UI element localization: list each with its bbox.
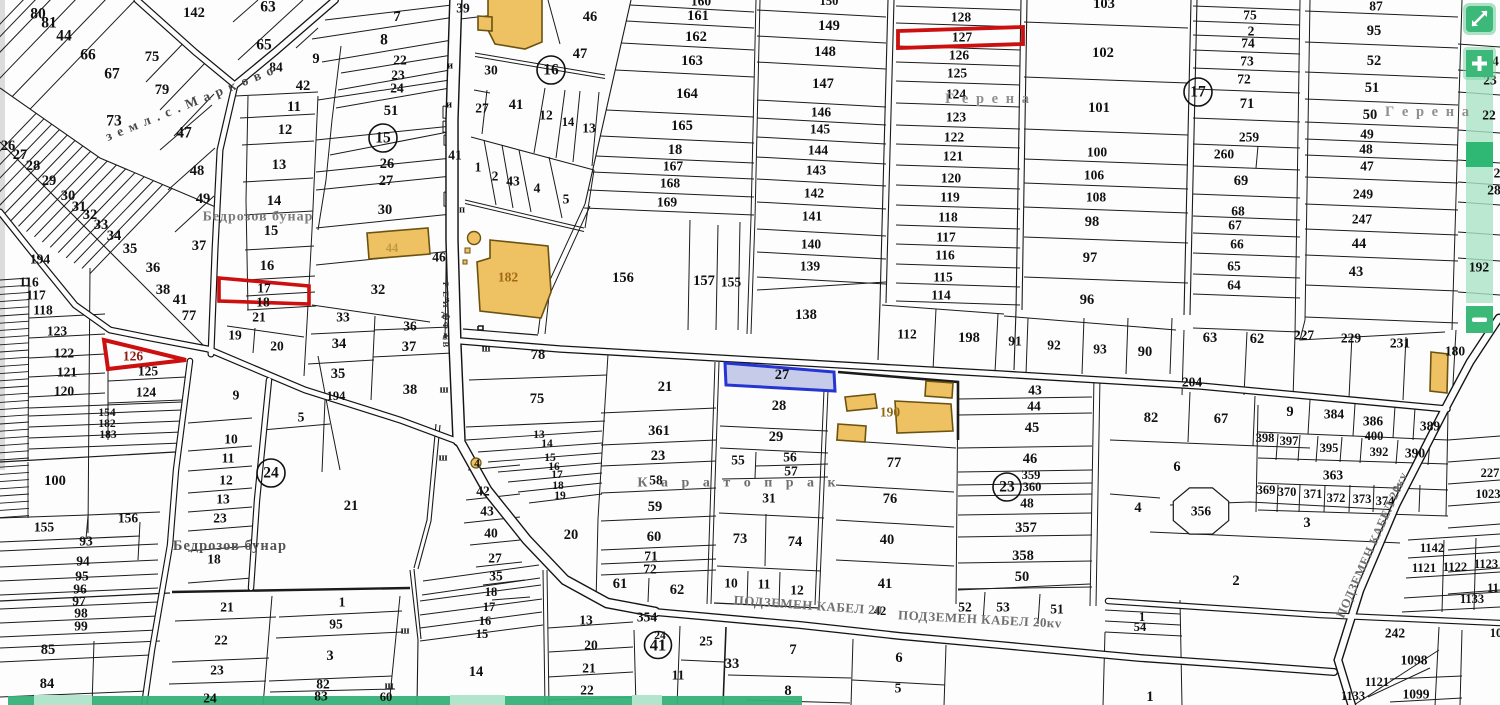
- svg-text:121: 121: [57, 365, 78, 380]
- svg-text:3: 3: [1303, 515, 1310, 531]
- svg-text:75: 75: [145, 49, 160, 65]
- svg-text:41: 41: [509, 97, 524, 113]
- svg-text:33: 33: [336, 310, 350, 325]
- svg-text:37: 37: [192, 238, 207, 254]
- svg-text:125: 125: [947, 66, 968, 81]
- svg-text:161: 161: [687, 8, 709, 24]
- svg-text:192: 192: [1469, 260, 1490, 275]
- svg-text:146: 146: [811, 105, 832, 120]
- svg-text:41: 41: [448, 148, 462, 163]
- svg-text:60: 60: [647, 529, 662, 545]
- svg-text:126: 126: [949, 48, 970, 63]
- svg-text:386: 386: [1363, 414, 1384, 429]
- svg-text:ш: ш: [385, 681, 394, 692]
- svg-text:51: 51: [1050, 602, 1064, 617]
- svg-text:Р Е И Д Ф 4 В: Р Е И Д Ф 4 В: [441, 282, 451, 348]
- svg-text:46: 46: [583, 9, 598, 25]
- svg-text:42: 42: [476, 484, 490, 499]
- svg-text:260: 260: [1214, 147, 1235, 162]
- svg-text:155: 155: [721, 275, 742, 290]
- svg-text:44: 44: [1352, 236, 1367, 252]
- svg-text:6: 6: [895, 650, 902, 666]
- svg-text:118: 118: [33, 303, 53, 318]
- svg-text:44: 44: [56, 28, 72, 45]
- svg-text:52: 52: [1367, 53, 1382, 69]
- svg-text:33: 33: [725, 656, 740, 672]
- svg-text:194: 194: [327, 389, 347, 403]
- svg-text:167: 167: [663, 159, 684, 174]
- svg-text:29: 29: [42, 173, 57, 189]
- svg-text:13: 13: [582, 121, 596, 136]
- svg-text:43: 43: [506, 174, 520, 189]
- svg-text:23: 23: [999, 479, 1015, 496]
- svg-text:22: 22: [214, 633, 228, 648]
- svg-text:47: 47: [573, 46, 588, 62]
- svg-text:97: 97: [1083, 250, 1098, 266]
- svg-text:390: 390: [1405, 446, 1426, 461]
- svg-text:5: 5: [298, 410, 305, 425]
- svg-text:1098: 1098: [1401, 653, 1428, 668]
- svg-text:36: 36: [146, 260, 161, 276]
- svg-text:24: 24: [390, 81, 404, 96]
- svg-text:17: 17: [257, 281, 271, 296]
- svg-text:1133: 1133: [1460, 592, 1484, 606]
- svg-text:371: 371: [1304, 487, 1323, 501]
- svg-text:20: 20: [564, 527, 579, 543]
- svg-text:204: 204: [1182, 375, 1203, 390]
- svg-text:8: 8: [380, 32, 388, 49]
- svg-text:28: 28: [1487, 183, 1500, 198]
- svg-text:99: 99: [74, 619, 88, 634]
- svg-text:123: 123: [946, 110, 967, 125]
- svg-text:22: 22: [580, 683, 594, 698]
- svg-text:51: 51: [384, 103, 399, 119]
- svg-text:120: 120: [941, 171, 962, 186]
- svg-text:75: 75: [1243, 8, 1257, 23]
- svg-text:95: 95: [1367, 23, 1382, 39]
- svg-text:38: 38: [403, 382, 418, 398]
- svg-text:145: 145: [810, 122, 831, 137]
- svg-text:67: 67: [1214, 411, 1229, 427]
- svg-text:4: 4: [534, 181, 541, 196]
- svg-text:142: 142: [804, 186, 825, 201]
- svg-text:12: 12: [219, 473, 233, 488]
- svg-text:77: 77: [887, 455, 902, 471]
- svg-text:400: 400: [1365, 429, 1384, 443]
- svg-text:К а р а т о п р а к: К а р а т о п р а к: [637, 476, 840, 491]
- svg-text:34: 34: [332, 336, 347, 352]
- svg-text:84: 84: [40, 676, 55, 692]
- svg-text:116: 116: [935, 248, 955, 263]
- svg-text:363: 363: [1323, 468, 1344, 483]
- svg-text:48: 48: [1359, 142, 1373, 157]
- svg-text:392: 392: [1370, 445, 1389, 459]
- svg-text:87: 87: [1369, 0, 1383, 14]
- svg-text:108: 108: [1086, 190, 1107, 205]
- svg-text:9: 9: [233, 388, 240, 403]
- svg-text:155: 155: [34, 520, 55, 535]
- svg-text:27: 27: [488, 551, 502, 566]
- svg-text:ш: ш: [439, 453, 448, 464]
- svg-text:156: 156: [612, 270, 634, 286]
- svg-text:389: 389: [1420, 419, 1441, 434]
- svg-text:30: 30: [484, 63, 498, 78]
- svg-text:1133: 1133: [1341, 689, 1365, 703]
- svg-text:10: 10: [224, 432, 238, 447]
- svg-text:25: 25: [699, 634, 713, 649]
- svg-text:98: 98: [1085, 214, 1100, 230]
- svg-text:1142: 1142: [1420, 541, 1444, 555]
- svg-text:369: 369: [1257, 483, 1276, 497]
- svg-text:68: 68: [1231, 204, 1245, 219]
- svg-text:18: 18: [256, 295, 270, 310]
- svg-text:101: 101: [1088, 100, 1110, 116]
- svg-text:95: 95: [329, 617, 343, 632]
- svg-text:2: 2: [1494, 166, 1500, 181]
- svg-text:12: 12: [539, 108, 553, 123]
- svg-text:144: 144: [808, 143, 829, 158]
- svg-text:73: 73: [733, 531, 748, 547]
- svg-text:ш: ш: [440, 385, 449, 396]
- svg-text:43: 43: [1349, 264, 1364, 280]
- svg-text:1023: 1023: [1476, 487, 1500, 501]
- svg-text:112: 112: [897, 327, 917, 342]
- svg-text:1: 1: [475, 160, 482, 175]
- svg-text:81: 81: [41, 15, 57, 32]
- svg-text:47: 47: [1360, 159, 1374, 174]
- svg-text:ш: ш: [401, 626, 410, 637]
- svg-text:23: 23: [213, 511, 227, 526]
- svg-text:79: 79: [155, 82, 170, 98]
- svg-text:126: 126: [123, 349, 144, 364]
- svg-text:Г е р е н а: Г е р е н а: [1385, 104, 1471, 120]
- svg-text:93: 93: [1093, 342, 1107, 357]
- svg-text:1099: 1099: [1403, 687, 1430, 702]
- svg-text:183: 183: [99, 429, 117, 441]
- svg-text:143: 143: [806, 163, 827, 178]
- svg-text:22: 22: [393, 53, 407, 68]
- svg-text:59: 59: [648, 499, 663, 515]
- svg-text:122: 122: [54, 346, 75, 361]
- svg-text:43: 43: [480, 504, 494, 519]
- svg-text:75: 75: [530, 391, 545, 407]
- svg-text:93: 93: [79, 534, 93, 549]
- svg-text:21: 21: [252, 310, 266, 325]
- svg-text:27: 27: [475, 101, 489, 116]
- svg-text:124: 124: [136, 385, 157, 400]
- svg-text:1: 1: [339, 595, 346, 610]
- svg-text:92: 92: [1047, 338, 1061, 353]
- svg-text:23: 23: [210, 663, 224, 678]
- svg-text:242: 242: [1385, 626, 1406, 641]
- svg-text:42: 42: [296, 78, 311, 94]
- svg-text:30: 30: [378, 202, 393, 218]
- svg-text:37: 37: [402, 339, 417, 355]
- svg-text:35: 35: [123, 241, 138, 257]
- svg-text:39: 39: [456, 1, 470, 16]
- svg-text:7: 7: [789, 642, 796, 658]
- svg-text:18: 18: [668, 142, 683, 158]
- svg-text:120: 120: [54, 384, 75, 399]
- svg-text:164: 164: [676, 86, 698, 102]
- svg-text:227: 227: [1481, 466, 1500, 480]
- svg-text:67: 67: [1228, 218, 1242, 233]
- svg-text:94: 94: [76, 554, 90, 569]
- svg-text:48: 48: [1020, 496, 1034, 511]
- svg-text:106: 106: [1084, 168, 1105, 183]
- svg-text:11: 11: [1487, 581, 1499, 595]
- svg-text:149: 149: [818, 18, 840, 34]
- svg-text:16: 16: [479, 614, 492, 628]
- svg-text:16: 16: [543, 62, 559, 79]
- svg-text:14: 14: [541, 438, 553, 450]
- svg-text:11: 11: [287, 99, 301, 115]
- svg-text:5: 5: [563, 192, 570, 207]
- svg-text:18: 18: [485, 585, 498, 599]
- svg-text:40: 40: [484, 526, 498, 541]
- svg-text:56: 56: [783, 450, 797, 465]
- svg-text:46: 46: [1023, 451, 1038, 467]
- svg-text:10: 10: [724, 576, 738, 591]
- svg-text:27: 27: [775, 367, 790, 383]
- svg-text:5: 5: [895, 681, 902, 696]
- svg-text:180: 180: [1445, 344, 1466, 359]
- svg-text:21: 21: [220, 600, 234, 615]
- svg-text:50: 50: [1363, 107, 1378, 123]
- svg-text:27: 27: [379, 173, 394, 189]
- svg-text:26: 26: [380, 156, 395, 172]
- svg-text:41: 41: [650, 636, 667, 655]
- svg-text:370: 370: [1278, 485, 1297, 499]
- svg-text:76: 76: [883, 491, 898, 507]
- svg-text:49: 49: [196, 191, 211, 207]
- svg-text:65: 65: [1227, 259, 1241, 274]
- svg-text:15: 15: [476, 627, 489, 641]
- svg-text:17: 17: [483, 600, 496, 614]
- svg-text:и: и: [447, 61, 453, 72]
- svg-text:19: 19: [228, 328, 242, 343]
- svg-text:138: 138: [795, 307, 817, 323]
- svg-text:356: 356: [1191, 504, 1212, 519]
- svg-text:62: 62: [1250, 331, 1265, 347]
- svg-text:и: и: [446, 100, 452, 111]
- svg-text:11: 11: [758, 577, 771, 592]
- svg-text:55: 55: [731, 453, 745, 468]
- svg-text:8: 8: [784, 683, 791, 699]
- svg-text:1123: 1123: [1474, 557, 1498, 571]
- svg-text:194: 194: [30, 252, 51, 267]
- svg-text:47: 47: [176, 125, 192, 142]
- svg-text:229: 229: [1341, 331, 1362, 346]
- svg-text:82: 82: [1144, 410, 1159, 426]
- svg-text:148: 148: [814, 44, 836, 60]
- svg-text:20: 20: [584, 638, 598, 653]
- svg-text:54: 54: [1134, 620, 1147, 634]
- svg-text:13: 13: [216, 492, 230, 507]
- svg-text:361: 361: [648, 423, 670, 439]
- svg-text:15: 15: [375, 130, 391, 147]
- svg-text:24: 24: [203, 691, 217, 705]
- svg-text:96: 96: [1080, 292, 1095, 308]
- svg-text:162: 162: [685, 29, 707, 45]
- svg-text:72: 72: [643, 562, 657, 577]
- svg-text:372: 372: [1327, 491, 1346, 505]
- svg-text:15: 15: [264, 223, 279, 239]
- svg-text:п: п: [459, 205, 465, 216]
- svg-text:64: 64: [1227, 278, 1241, 293]
- svg-text:117: 117: [936, 230, 956, 245]
- svg-text:60: 60: [380, 690, 393, 704]
- svg-text:43: 43: [1028, 383, 1042, 398]
- svg-text:9: 9: [312, 51, 319, 67]
- svg-text:3: 3: [326, 648, 333, 664]
- svg-text:13: 13: [579, 613, 593, 628]
- svg-text:Г е р е н а: Г е р е н а: [945, 91, 1031, 107]
- svg-text:100: 100: [1087, 145, 1108, 160]
- svg-text:357: 357: [1015, 520, 1037, 536]
- svg-text:360: 360: [1023, 480, 1042, 494]
- svg-text:227: 227: [1294, 328, 1315, 343]
- svg-text:50: 50: [1015, 569, 1030, 585]
- svg-text:51: 51: [1365, 80, 1380, 96]
- svg-text:91: 91: [1008, 334, 1022, 349]
- svg-text:142: 142: [183, 5, 205, 21]
- svg-text:83: 83: [314, 689, 328, 704]
- svg-text:32: 32: [371, 282, 386, 298]
- svg-text:127: 127: [952, 30, 973, 45]
- svg-text:12: 12: [278, 122, 293, 138]
- svg-text:6: 6: [1173, 459, 1180, 475]
- svg-text:198: 198: [958, 330, 980, 346]
- svg-text:62: 62: [670, 582, 685, 598]
- svg-text:73: 73: [1240, 54, 1254, 69]
- svg-text:71: 71: [1240, 96, 1255, 112]
- svg-text:102: 102: [1092, 45, 1114, 61]
- svg-text:12: 12: [790, 583, 804, 598]
- svg-text:147: 147: [812, 76, 834, 92]
- svg-text:140: 140: [801, 237, 822, 252]
- svg-text:117: 117: [26, 288, 46, 303]
- svg-text:139: 139: [800, 259, 821, 274]
- svg-text:169: 169: [657, 195, 678, 210]
- svg-text:21: 21: [658, 379, 673, 395]
- svg-text:10: 10: [1490, 626, 1500, 640]
- svg-text:35: 35: [489, 569, 503, 584]
- svg-text:13: 13: [272, 157, 287, 173]
- svg-text:11: 11: [222, 451, 235, 466]
- svg-text:74: 74: [1241, 36, 1255, 51]
- svg-text:157: 157: [693, 273, 715, 289]
- svg-text:4: 4: [474, 458, 480, 470]
- svg-text:259: 259: [1239, 130, 1260, 145]
- svg-text:141: 141: [802, 209, 823, 224]
- svg-text:163: 163: [681, 53, 703, 69]
- svg-text:373: 373: [1353, 492, 1372, 506]
- svg-text:1121: 1121: [1412, 561, 1436, 575]
- svg-text:31: 31: [762, 491, 776, 506]
- svg-text:66: 66: [1230, 237, 1244, 252]
- svg-text:168: 168: [660, 176, 681, 191]
- svg-text:46: 46: [432, 250, 446, 265]
- svg-text:11: 11: [672, 668, 685, 683]
- svg-text:21: 21: [344, 498, 359, 514]
- svg-text:72: 72: [1237, 72, 1251, 87]
- svg-text:20: 20: [270, 339, 284, 354]
- svg-text:14: 14: [469, 664, 484, 680]
- svg-text:78: 78: [531, 347, 546, 363]
- svg-text:123: 123: [47, 324, 68, 339]
- svg-text:354: 354: [637, 610, 658, 625]
- svg-text:66: 66: [80, 47, 96, 64]
- svg-text:ш: ш: [482, 344, 491, 355]
- svg-text:156: 156: [118, 511, 139, 526]
- svg-text:61: 61: [613, 576, 628, 592]
- svg-text:358: 358: [1012, 548, 1034, 564]
- svg-text:190: 190: [880, 405, 901, 420]
- svg-text:1: 1: [1146, 689, 1153, 705]
- svg-text:49: 49: [1360, 127, 1374, 142]
- svg-text:Бедрозов бунар: Бедрозов бунар: [203, 210, 314, 225]
- svg-text:128: 128: [951, 10, 972, 25]
- svg-text:247: 247: [1352, 212, 1373, 227]
- svg-text:121: 121: [943, 149, 964, 164]
- svg-text:119: 119: [940, 190, 960, 205]
- svg-text:65: 65: [256, 37, 272, 54]
- svg-text:118: 118: [938, 210, 958, 225]
- svg-text:397: 397: [1280, 434, 1299, 448]
- svg-text:165: 165: [671, 118, 693, 134]
- svg-text:38: 38: [156, 282, 171, 298]
- svg-text:9: 9: [1286, 404, 1293, 420]
- svg-text:16: 16: [260, 258, 275, 274]
- svg-text:Бедрозов бунар: Бедрозов бунар: [173, 538, 287, 554]
- svg-text:67: 67: [104, 66, 120, 83]
- svg-text:384: 384: [1324, 407, 1345, 422]
- svg-text:19: 19: [554, 490, 566, 502]
- svg-text:7: 7: [393, 9, 400, 25]
- svg-text:231: 231: [1390, 336, 1411, 351]
- svg-text:4: 4: [1134, 500, 1141, 516]
- svg-text:2: 2: [492, 169, 499, 184]
- svg-text:28: 28: [772, 398, 787, 414]
- svg-text:35: 35: [331, 366, 346, 382]
- svg-text:114: 114: [931, 288, 951, 303]
- svg-text:48: 48: [190, 163, 205, 179]
- svg-text:63: 63: [1203, 330, 1218, 346]
- svg-text:63: 63: [260, 0, 276, 16]
- svg-text:85: 85: [41, 642, 56, 658]
- svg-text:122: 122: [944, 130, 965, 145]
- svg-text:24: 24: [263, 465, 279, 482]
- svg-text:29: 29: [769, 429, 784, 445]
- svg-text:125: 125: [138, 364, 159, 379]
- svg-text:395: 395: [1320, 441, 1339, 455]
- svg-text:45: 45: [1025, 420, 1040, 436]
- svg-text:41: 41: [878, 576, 893, 592]
- svg-text:14: 14: [267, 193, 282, 209]
- svg-text:249: 249: [1353, 187, 1374, 202]
- svg-text:1122: 1122: [1443, 560, 1467, 574]
- svg-text:103: 103: [1093, 0, 1115, 12]
- svg-text:90: 90: [1138, 344, 1153, 360]
- svg-text:69: 69: [1234, 173, 1249, 189]
- svg-text:40: 40: [880, 532, 895, 548]
- svg-text:100: 100: [44, 473, 66, 489]
- svg-text:22: 22: [1482, 108, 1496, 123]
- svg-text:17: 17: [1190, 84, 1206, 101]
- svg-text:21: 21: [582, 661, 596, 676]
- svg-text:44: 44: [1027, 399, 1041, 414]
